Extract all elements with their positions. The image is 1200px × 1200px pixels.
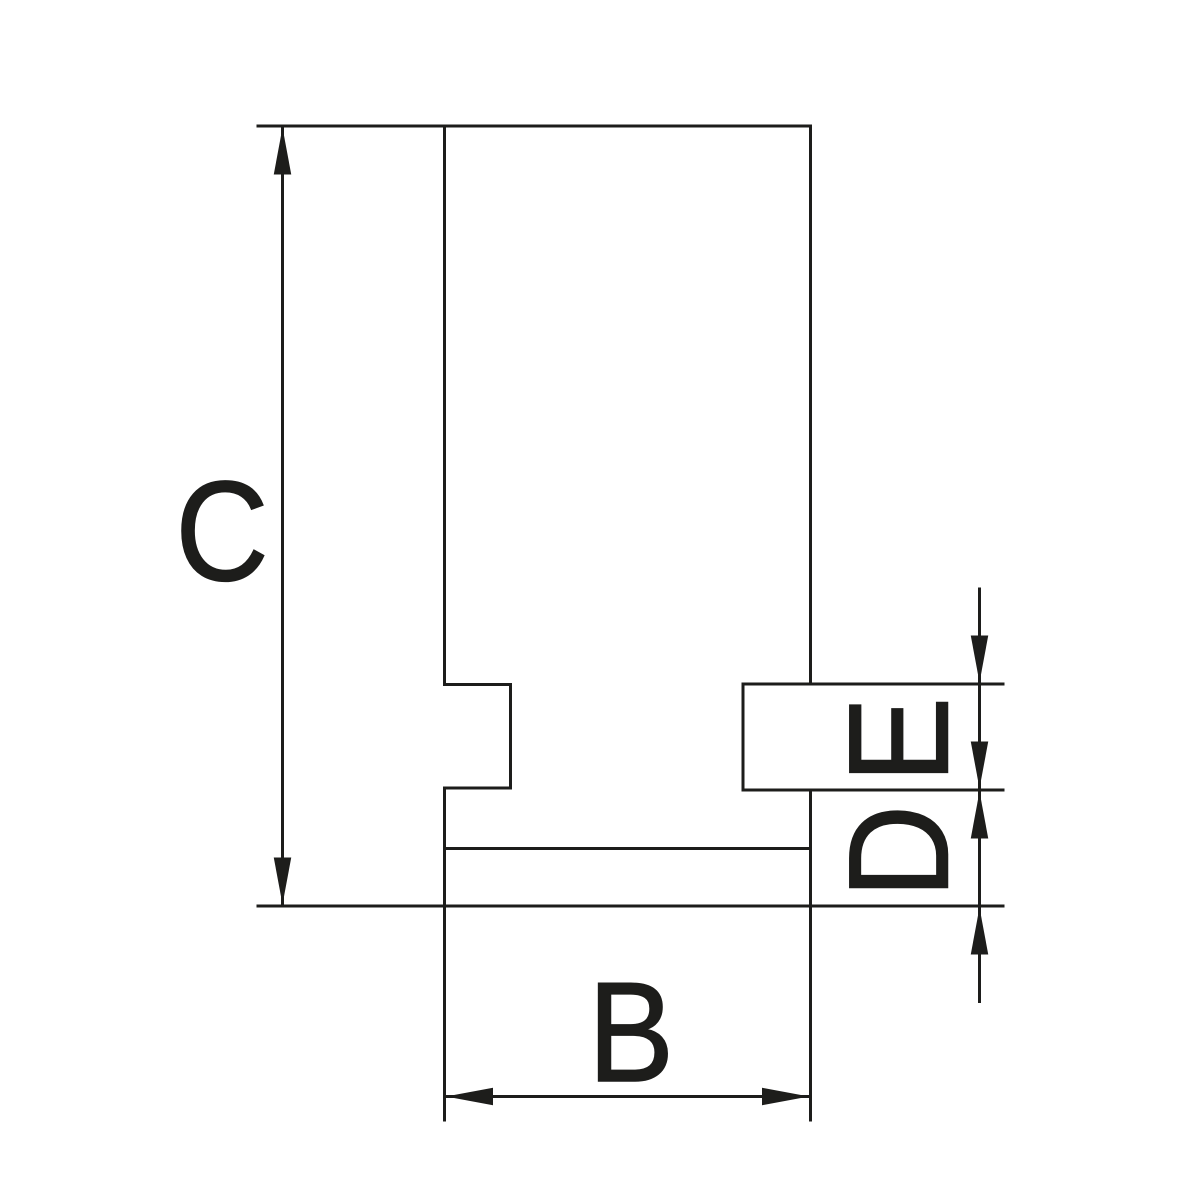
svg-text:C: C [175,451,268,610]
svg-text:E: E [819,697,978,783]
svg-text:B: B [588,952,674,1111]
svg-text:D: D [819,805,978,898]
